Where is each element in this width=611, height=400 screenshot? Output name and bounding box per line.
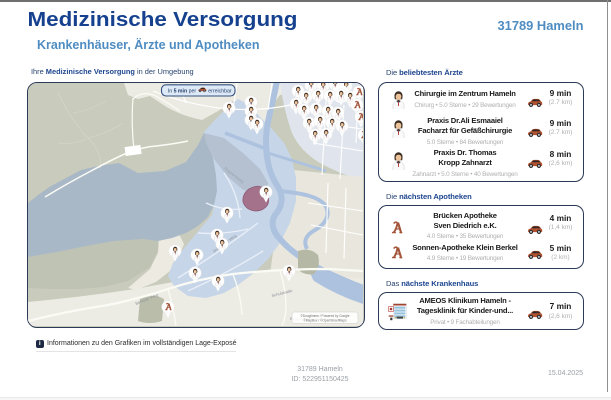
svg-text:In 5 min per: In 5 min per (168, 88, 197, 94)
svg-text:©MapBox / ©OpenStreetMaps: ©MapBox / ©OpenStreetMaps (303, 319, 347, 323)
svg-text:erreichbar: erreichbar (208, 88, 232, 94)
svg-text:©Dooglimme / Powered by Google: ©Dooglimme / Powered by Google (300, 314, 349, 318)
